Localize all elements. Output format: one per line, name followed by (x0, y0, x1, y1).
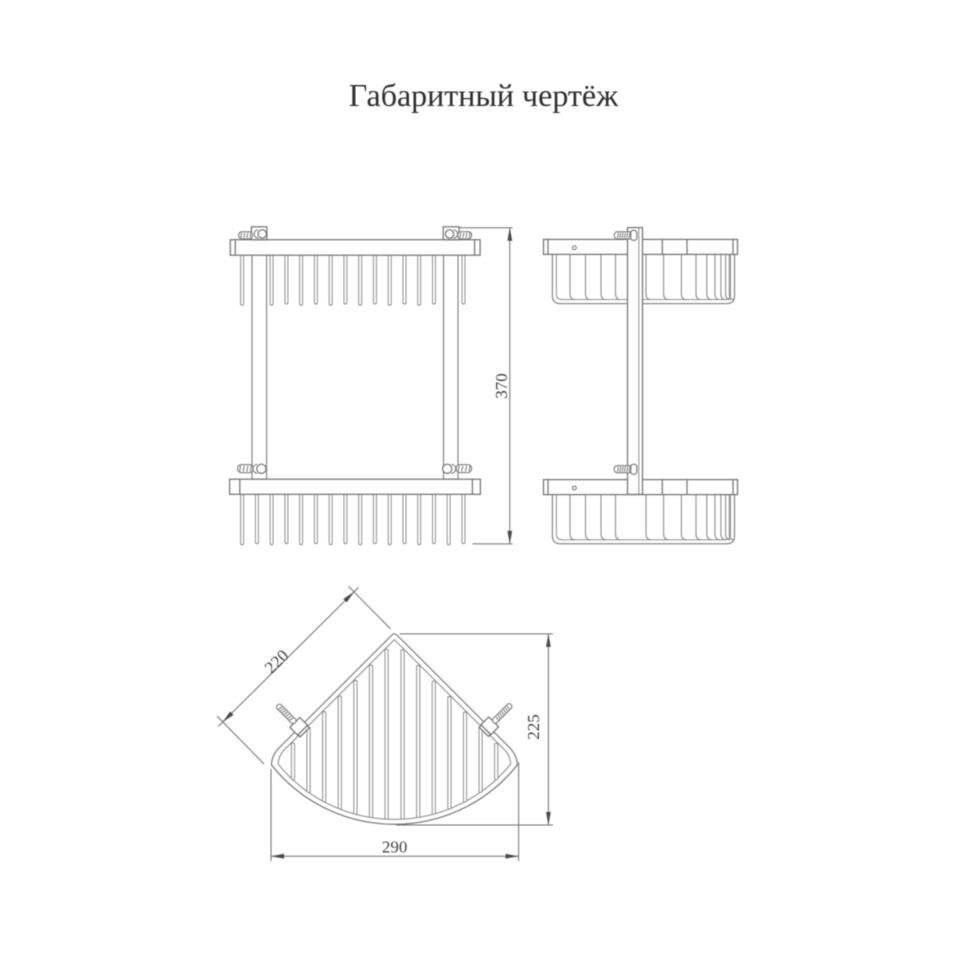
svg-text:Габаритный чертёж: Габаритный чертёж (349, 77, 619, 113)
svg-text:225: 225 (524, 714, 543, 740)
svg-text:370: 370 (492, 373, 511, 399)
svg-text:290: 290 (382, 838, 408, 857)
